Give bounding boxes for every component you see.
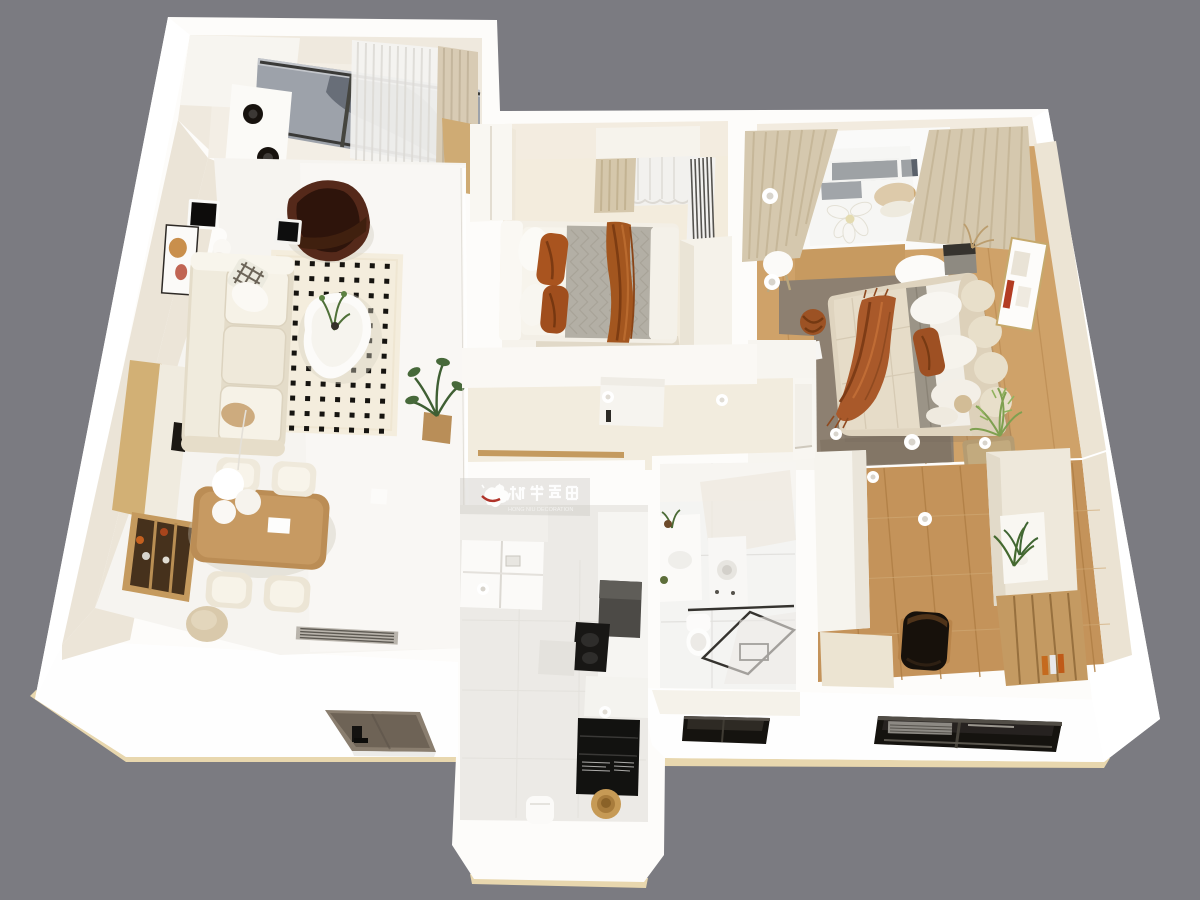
- svg-text:HONG NIU DECORATION: HONG NIU DECORATION: [508, 507, 573, 513]
